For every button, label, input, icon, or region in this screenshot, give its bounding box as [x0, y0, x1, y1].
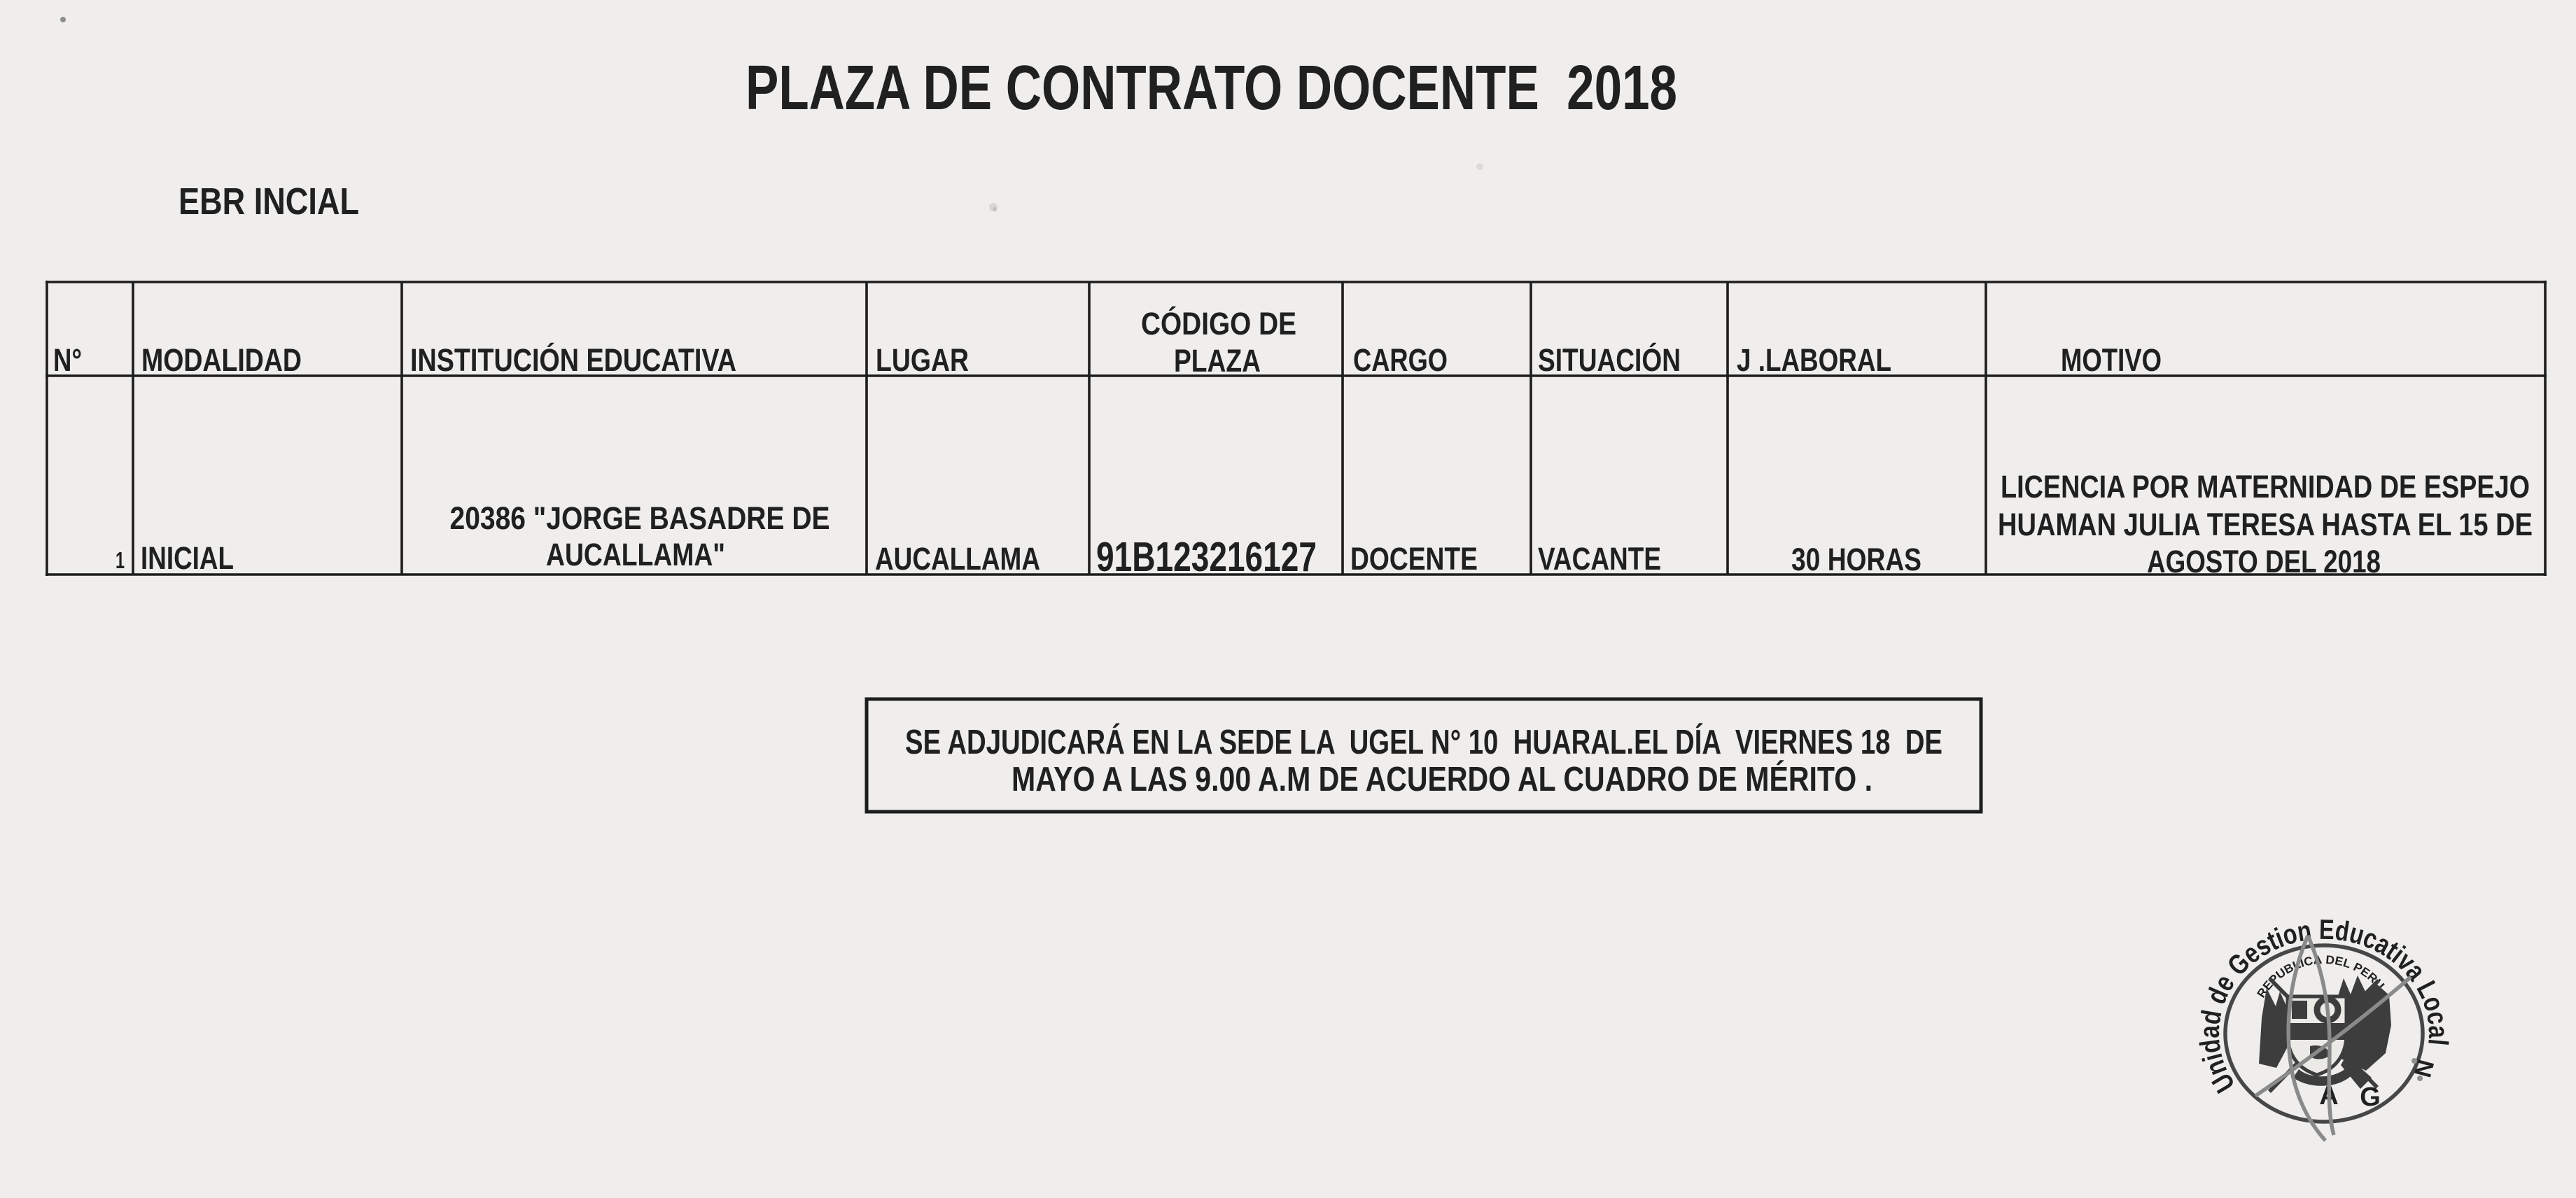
svg-text:1: 1	[115, 547, 125, 573]
svg-text:LUGAR: LUGAR	[876, 342, 969, 378]
svg-text:MAYO A LAS 9.00 A.M DE ACUERDO: MAYO A LAS 9.00 A.M DE ACUERDO AL CUADRO…	[1011, 761, 1872, 798]
svg-text:DOCENTE: DOCENTE	[1350, 541, 1478, 577]
svg-text:J .LABORAL: J .LABORAL	[1737, 342, 1891, 378]
svg-text:EBR INCIAL: EBR INCIAL	[178, 181, 359, 223]
svg-text:MODALIDAD: MODALIDAD	[141, 342, 302, 378]
svg-text:CARGO: CARGO	[1353, 342, 1448, 378]
svg-text:SE ADJUDICARÁ EN LA SEDE LA U: SE ADJUDICARÁ EN LA SEDE LA UGEL N° 10 H…	[905, 724, 1942, 761]
svg-text:N°: N°	[53, 342, 82, 378]
svg-text:CÓDIGO DE: CÓDIGO DE	[1141, 306, 1296, 341]
svg-text:HUAMAN JULIA TERESA HASTA EL 1: HUAMAN JULIA TERESA HASTA EL 15 DE	[1998, 507, 2533, 542]
svg-text:VACANTE: VACANTE	[1538, 541, 1661, 577]
svg-text:SITUACIÓN: SITUACIÓN	[1538, 342, 1681, 378]
svg-text:PLAZA: PLAZA	[1174, 343, 1261, 379]
svg-text:PLAZA DE CONTRATO DOCENTE 201: PLAZA DE CONTRATO DOCENTE 2018	[745, 53, 1677, 123]
svg-text:20386 "JORGE BASADRE DE: 20386 "JORGE BASADRE DE	[450, 500, 830, 536]
svg-text:AGOSTO DEL 2018: AGOSTO DEL 2018	[2147, 544, 2381, 579]
svg-text:LICENCIA POR MATERNIDAD DE ESP: LICENCIA POR MATERNIDAD DE ESPEJO	[2001, 469, 2530, 505]
svg-text:G: G	[2360, 1083, 2381, 1112]
svg-text:91B123216127: 91B123216127	[1096, 534, 1317, 580]
svg-text:AUCALLAMA: AUCALLAMA	[875, 541, 1040, 577]
svg-text:INSTITUCIÓN EDUCATIVA: INSTITUCIÓN EDUCATIVA	[410, 342, 736, 378]
svg-text:AUCALLAMA": AUCALLAMA"	[546, 537, 725, 572]
svg-text:INICIAL: INICIAL	[141, 540, 234, 576]
svg-text:MOTIVO: MOTIVO	[2061, 342, 2162, 378]
svg-text:30 HORAS: 30 HORAS	[1791, 542, 1921, 577]
